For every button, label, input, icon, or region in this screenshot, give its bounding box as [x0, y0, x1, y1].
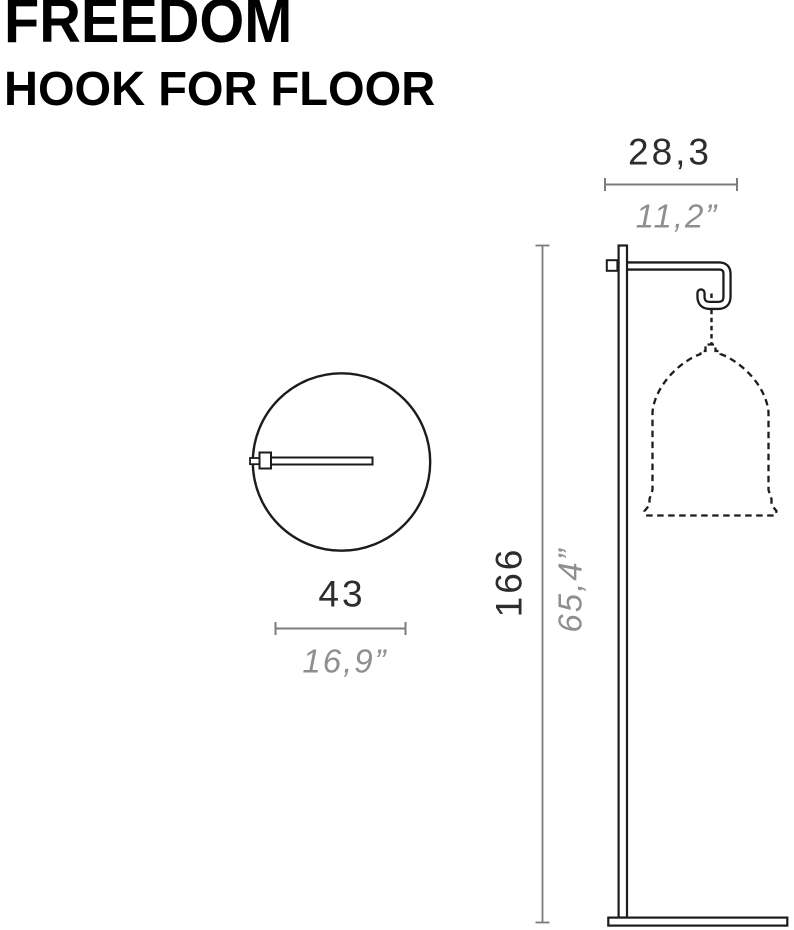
- arm-hook-inner: [612, 266, 728, 305]
- width-inch-label: 11,2”: [636, 200, 719, 233]
- fixing-tab: [607, 260, 618, 271]
- height-dimension-line: [536, 246, 550, 923]
- height-cm-label: 166: [491, 547, 528, 618]
- lampshade-outline: [645, 345, 777, 516]
- pole: [619, 246, 627, 918]
- top-view-arm-bar: [269, 458, 373, 465]
- height-inch-label: 65,4”: [554, 547, 587, 632]
- top-view-fixing-square: [260, 453, 272, 469]
- diameter-inch-label: 16,9”: [302, 645, 387, 678]
- arm-hook-outer: [612, 266, 728, 305]
- width-cm-label: 28,3: [628, 134, 712, 171]
- width-dimension-line: [605, 178, 737, 191]
- spec-sheet: FREEDOM HOOK FOR FLOOR: [0, 0, 794, 930]
- diameter-cm-label: 43: [318, 576, 365, 613]
- base-plate: [608, 918, 787, 926]
- diameter-dimension-line: [276, 622, 406, 635]
